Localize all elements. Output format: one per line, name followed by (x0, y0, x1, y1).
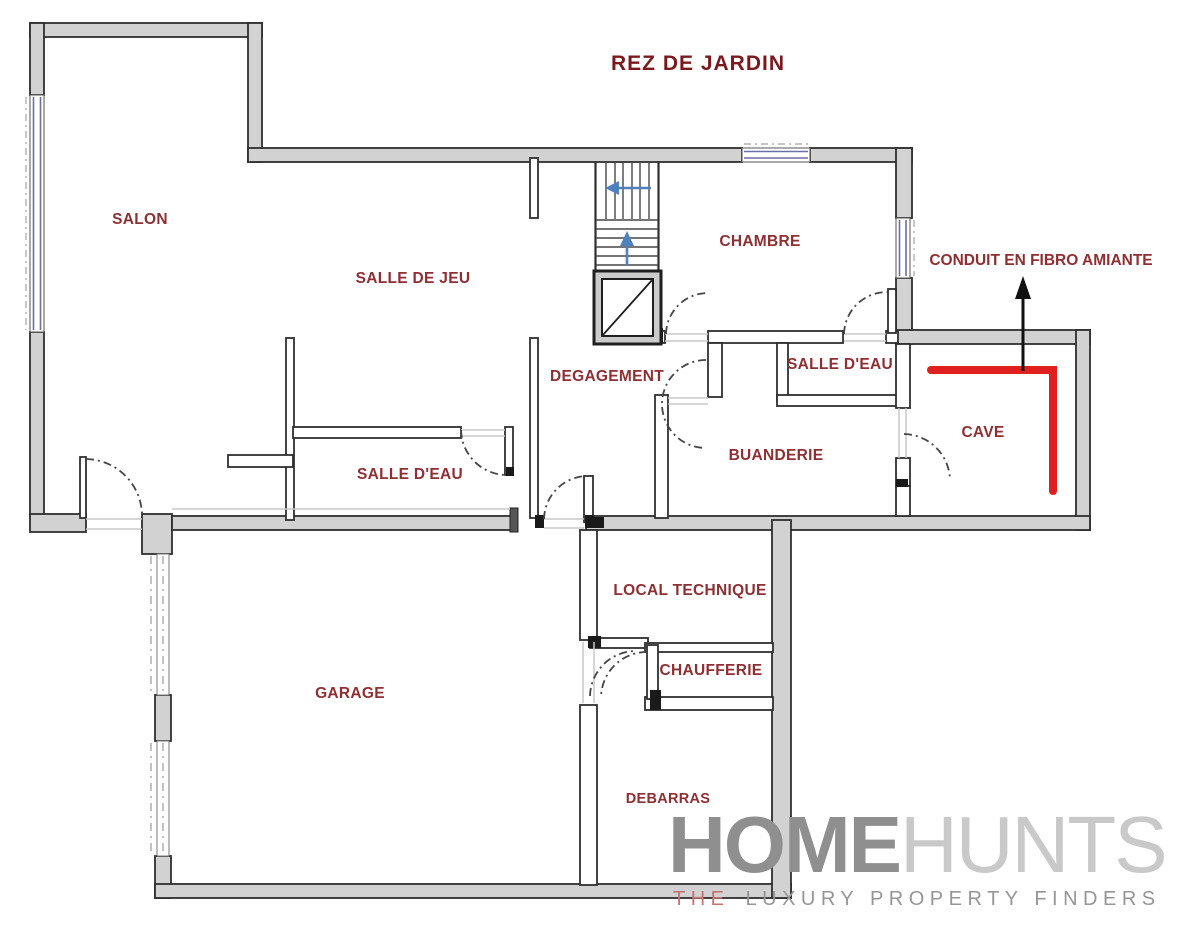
page-title: REZ DE JARDIN (611, 52, 785, 75)
room-label-salle-de-jeu: SALLE DE JEU (356, 270, 471, 287)
logo-tagline: THELUXURY PROPERTY FINDERS (673, 888, 1161, 910)
garage-bay-door-lower (151, 741, 169, 856)
exterior-walls (30, 23, 1090, 898)
door-degagement-garage (544, 476, 588, 519)
window-top (742, 144, 810, 162)
door-cave (904, 434, 950, 480)
window-salon-left (26, 95, 44, 332)
room-label-chaufferie: CHAUFFERIE (660, 662, 763, 679)
door-jamb-stub (510, 508, 518, 532)
room-label-cave: CAVE (961, 424, 1004, 441)
conduit-arrow-icon (1015, 276, 1031, 371)
room-label-buanderie: BUANDERIE (729, 447, 824, 464)
room-label-salle-deau-chambre: SALLE D'EAU (787, 356, 893, 373)
door-garage-passage (590, 651, 635, 696)
floor-plan-page: REZ DE JARDIN CONDUIT EN FIBRO AMIANTE S… (0, 0, 1198, 932)
garage-bay-door-upper (151, 554, 169, 695)
room-label-degagement: DEGAGEMENT (550, 368, 664, 385)
room-label-garage: GARAGE (315, 685, 385, 702)
door-entry (86, 459, 142, 514)
room-label-salle-deau: SALLE D'EAU (357, 466, 463, 483)
door-chaufferie (601, 652, 647, 697)
conduit-annotation-label: CONDUIT EN FIBRO AMIANTE (929, 252, 1152, 269)
door-chambre (666, 293, 708, 334)
room-label-local-technique: LOCAL TECHNIQUE (613, 582, 766, 599)
stairs-left-arrowhead-icon (605, 181, 619, 195)
door-arcs (86, 292, 950, 697)
door-chambre-salle-deau (844, 292, 887, 334)
staircase (596, 162, 659, 271)
room-label-salon: SALON (112, 211, 168, 228)
window-chambre (896, 218, 914, 278)
room-label-chambre: CHAMBRE (719, 233, 800, 250)
logo-wordmark: HOMEHUNTS (668, 800, 1166, 889)
shaft-box (594, 271, 661, 344)
floor-plan-drawing: REZ DE JARDIN CONDUIT EN FIBRO AMIANTE S… (0, 0, 1198, 932)
